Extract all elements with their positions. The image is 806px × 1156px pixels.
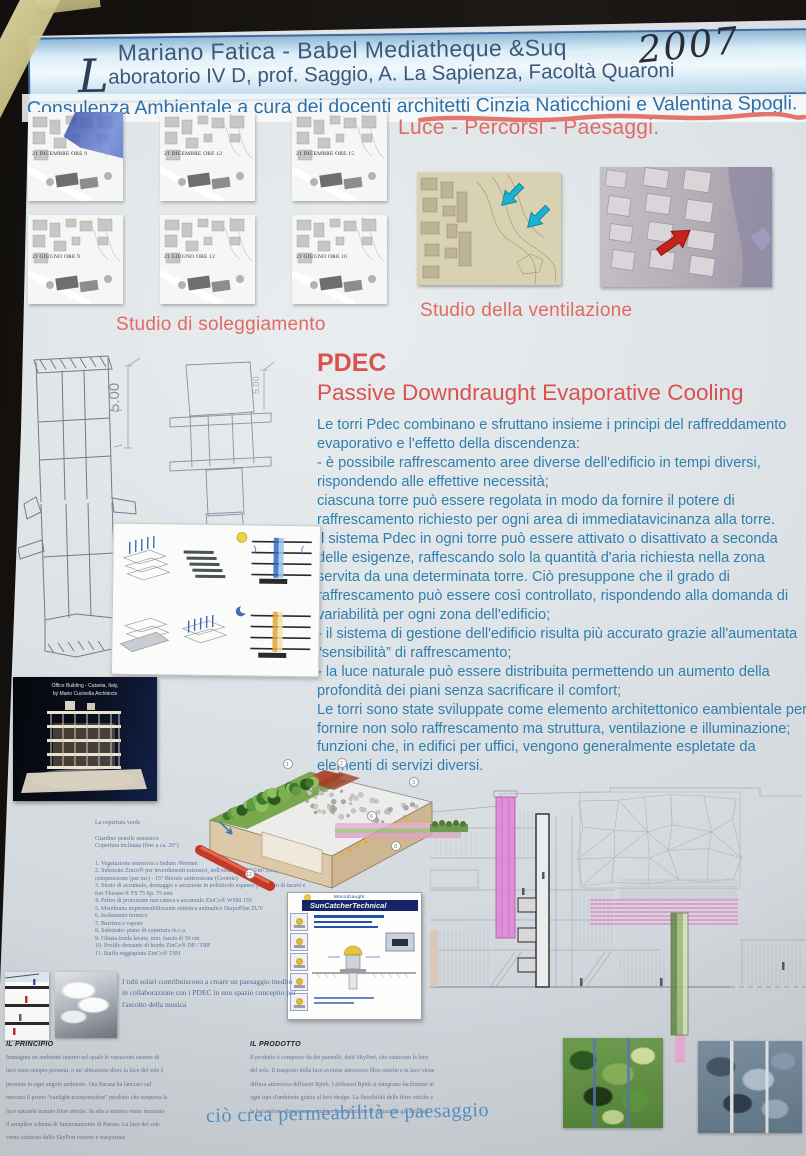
pdec-diagram-panel <box>111 523 321 678</box>
green-roof-item: 8. Substrato: piano di copertura in c.a. <box>95 928 313 936</box>
green-roof-item: 5. Membrana impermeabilizzante sintetica… <box>95 906 313 914</box>
sun-study-grid: 21 DICEMBRE ORE 9 21 DICEMBRE ORE 12 21 … <box>28 112 387 304</box>
pdec-paragraph: - è possibile raffrescamento aree divers… <box>317 454 806 492</box>
tower-dimension-small: 5.00 <box>251 376 261 394</box>
pdec-title: PDEC <box>317 349 806 378</box>
svg-text:6: 6 <box>370 814 373 820</box>
green-roof-item: 10. Profilo drenante di bordo ZinCo® DP … <box>95 943 313 951</box>
svg-text:1: 1 <box>286 762 289 768</box>
svg-text:12: 12 <box>246 872 252 878</box>
pdec-section: PDEC Passive Downdraught Evaporative Coo… <box>317 349 806 776</box>
sun-study-thumbnail: 21 DICEMBRE ORE 15 <box>292 112 387 201</box>
green-roof-item: 9. Ghiaia tonda lavata, min. fascia di 5… <box>95 936 313 944</box>
solar-tubes-note: I tubi solari contribuiscono a creare un… <box>122 976 296 1010</box>
sun-study-thumbnail: 21 DICEMBRE ORE 9 <box>28 112 123 201</box>
laboratorio-initial: L <box>78 53 109 99</box>
tower-dimension: 5.00 <box>106 383 123 412</box>
thumbnail-label: 21 GIUGNO ORE 9 <box>32 254 119 260</box>
suncatcher-diagram <box>288 893 421 1019</box>
parans-scheme-drawing <box>5 972 49 1040</box>
ventilation-caption: Studio della ventilazione <box>420 300 632 322</box>
thumbnail-label: 21 GIUGNO ORE 16 <box>296 254 383 260</box>
green-roof-item: 11. Staffa reggispinta ZinCo® TSH <box>95 951 313 959</box>
building-section-drawing <box>430 780 806 1065</box>
pdec-paragraph: ciascuna torre può essere regolata in mo… <box>317 492 806 530</box>
ventilation-map-summer <box>417 172 561 285</box>
thumbnail-label: 21 DICEMBRE ORE 12 <box>164 151 251 157</box>
pdec-paragraph: Il sistema Pdec in ogni torre può essere… <box>317 530 806 625</box>
principle-paragraph: Immagina un ambiente interno nel quale l… <box>6 1052 169 1146</box>
thumbnail-label: 21 DICEMBRE ORE 15 <box>296 151 383 157</box>
pdec-subtitle: Passive Downdraught Evaporative Cooling <box>317 380 806 406</box>
wind-arrow-cyan <box>496 180 553 233</box>
sun-study-thumbnail: 21 GIUGNO ORE 16 <box>292 215 387 304</box>
sun-study-thumbnail: 21 GIUGNO ORE 12 <box>160 215 255 304</box>
office-caption-line1: Office Building - Catania, Italy, <box>13 683 157 691</box>
ventilation-map-winter-drawing <box>600 167 772 287</box>
ventilation-map-summer-drawing <box>417 172 561 285</box>
tape-strip-2 <box>35 0 100 15</box>
pdec-diagrams <box>112 524 318 675</box>
parans-scheme-sketch <box>5 972 49 1040</box>
green-roof-item: 6. Isolamento termico <box>95 913 313 921</box>
svg-text:8: 8 <box>394 844 397 850</box>
hand-drawn-underline <box>418 112 806 126</box>
suncatcher-datasheet: Monodraught SunCatcherTechnical <box>287 892 422 1020</box>
svg-text:2: 2 <box>340 761 343 767</box>
poster-photograph: Mariano Fatica - Babel Mediatheque &Suq … <box>0 0 806 1156</box>
office-building-photo: Office Building - Catania, Italy, by Mar… <box>13 677 157 801</box>
ventilation-map-winter <box>600 167 772 287</box>
thumbnail-label: 21 GIUGNO ORE 12 <box>164 254 251 260</box>
sun-study-thumbnail: 21 GIUGNO ORE 9 <box>28 215 123 304</box>
ceiling-diffusers-photo <box>55 972 117 1038</box>
sun-study-thumbnail: 21 DICEMBRE ORE 12 <box>160 112 255 201</box>
pdec-paragraph: - il sistema di gestione dell'edificio r… <box>317 625 806 663</box>
sun-study-caption: Studio di soleggiamento <box>116 314 326 336</box>
office-caption-line2: by Mario Cucinella Architects <box>13 691 157 699</box>
green-roof-item: 4. Feltro di protezione meccanica e accu… <box>95 898 313 906</box>
office-photo-caption: Office Building - Catania, Italy, by Mar… <box>13 683 157 698</box>
pdec-body-text: Le torri Pdec combinano e sfruttano insi… <box>317 416 806 776</box>
thumbnail-label: 21 DICEMBRE ORE 9 <box>32 151 119 157</box>
pdec-paragraph: Le torri Pdec combinano e sfruttano insi… <box>317 416 806 454</box>
green-roof-item: 7. Barriera a vapore <box>95 921 313 929</box>
svg-text:3: 3 <box>412 780 415 786</box>
handwritten-year: 2007 <box>636 19 742 72</box>
principle-heading: IL PRINCIPIO <box>6 1041 53 1048</box>
facade-pattern-green <box>563 1038 663 1128</box>
facade-pattern-blue <box>698 1041 802 1133</box>
pdec-paragraph: - la luce naturale può essere distribuit… <box>317 663 806 701</box>
product-heading: IL PRODOTTO <box>250 1041 301 1048</box>
